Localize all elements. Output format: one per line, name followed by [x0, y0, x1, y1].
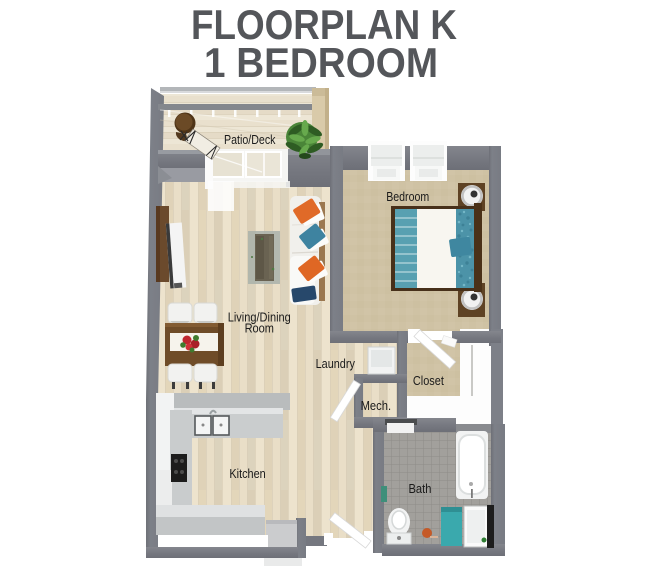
svg-text:Laundry: Laundry	[316, 356, 356, 371]
svg-text:Room: Room	[245, 321, 274, 336]
svg-text:Kitchen: Kitchen	[229, 466, 265, 481]
svg-text:Patio/Deck: Patio/Deck	[224, 132, 276, 147]
svg-text:Closet: Closet	[413, 373, 444, 388]
svg-text:Bath: Bath	[409, 481, 432, 496]
svg-text:1 BEDROOM: 1 BEDROOM	[204, 39, 438, 86]
svg-text:Mech.: Mech.	[361, 398, 392, 413]
svg-text:Bedroom: Bedroom	[386, 189, 429, 204]
